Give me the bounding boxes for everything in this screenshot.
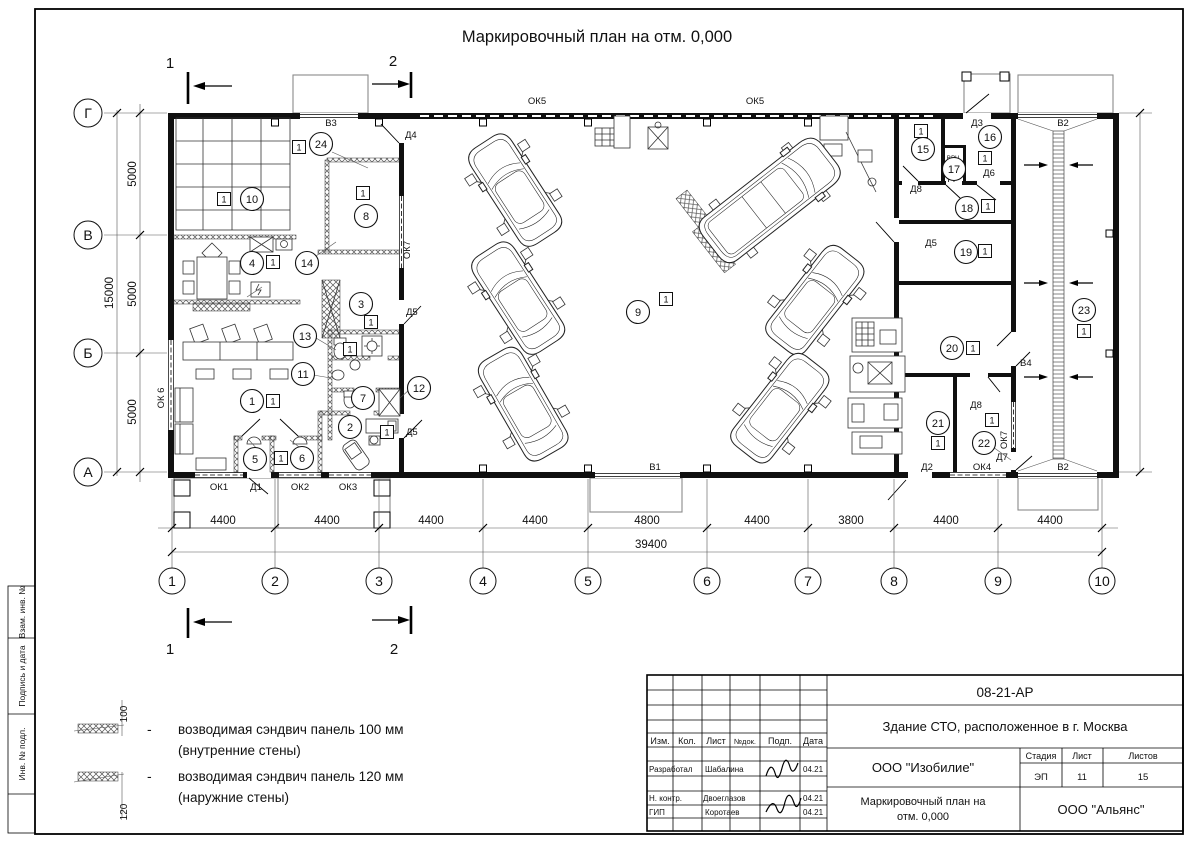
svg-text:-: -: [147, 721, 152, 737]
label-v2-bottom: В2: [1057, 462, 1069, 473]
project-name: Здание СТО, расположенное в г. Москва: [883, 719, 1129, 734]
row-role-1: Разработал: [649, 765, 693, 774]
svg-text:4: 4: [479, 573, 487, 589]
sheet-value: 11: [1077, 772, 1087, 783]
label-ok4: ОК4: [973, 462, 991, 473]
svg-text:возводимая сэндвич панель 120: возводимая сэндвич панель 120 мм: [178, 769, 404, 784]
svg-text:12: 12: [413, 383, 425, 395]
sheets-label: Листов: [1128, 751, 1157, 761]
svg-text:Б: Б: [83, 345, 92, 361]
svg-text:1: 1: [982, 247, 987, 257]
svg-text:4400: 4400: [744, 515, 770, 527]
svg-text:1: 1: [347, 345, 352, 355]
svg-text:Г: Г: [84, 105, 92, 121]
svg-text:17: 17: [948, 164, 960, 176]
svg-text:3: 3: [358, 299, 364, 311]
label-ok2: ОК2: [291, 482, 309, 493]
svg-text:13: 13: [299, 331, 311, 343]
sheets-value: 15: [1138, 772, 1149, 783]
svg-text:19: 19: [960, 247, 972, 259]
svg-text:2: 2: [389, 53, 397, 70]
label-ok7-left: ОК7: [402, 241, 413, 259]
label-v3: В3: [325, 118, 337, 129]
svg-text:9: 9: [994, 573, 1002, 589]
svg-text:1: 1: [278, 454, 283, 464]
org-name: ООО "Изобилие": [872, 760, 975, 775]
svg-text:1: 1: [918, 127, 923, 137]
svg-text:5000: 5000: [127, 399, 139, 425]
svg-text:16: 16: [984, 132, 996, 144]
svg-text:1: 1: [982, 154, 987, 164]
label-ok5-2: ОК5: [746, 96, 764, 107]
svg-text:В: В: [83, 227, 92, 243]
label-d3: Д3: [971, 118, 983, 129]
doc-title-line2: отм. 0,000: [897, 811, 949, 823]
svg-text:1: 1: [166, 641, 174, 658]
svg-text:(наружние стены): (наружние стены): [178, 790, 289, 805]
label-ok5-1: ОК5: [528, 96, 546, 107]
dim-labels-bottom: 4400 4400 4400 4400 4800 4400 3800 4400 …: [210, 515, 1063, 551]
svg-text:Подп.: Подп.: [768, 736, 792, 746]
svg-text:Дата: Дата: [803, 736, 823, 746]
stage-label: Стадия: [1026, 751, 1057, 761]
svg-text:Кол.: Кол.: [678, 736, 696, 746]
svg-text:4400: 4400: [1037, 515, 1063, 527]
svg-text:5000: 5000: [127, 281, 139, 307]
signature-2: [766, 795, 801, 812]
svg-text:11: 11: [297, 369, 308, 381]
svg-text:24: 24: [315, 139, 327, 151]
doc-code: 08-21-АР: [976, 685, 1033, 700]
label-d1: Д1: [250, 482, 262, 493]
svg-text:14: 14: [301, 258, 313, 270]
svg-text:5: 5: [584, 573, 592, 589]
drawing-sheet: Взам. инв. № Подпись и дата Инв. № подл.…: [0, 0, 1191, 842]
row-role-2: Н. контр.: [649, 794, 682, 803]
svg-text:1: 1: [270, 397, 275, 407]
svg-text:2: 2: [390, 641, 398, 658]
svg-text:7: 7: [360, 393, 366, 405]
label-ok3: ОК3: [339, 482, 357, 493]
svg-text:1: 1: [270, 258, 275, 268]
svg-text:5: 5: [252, 454, 258, 466]
svg-text:18: 18: [961, 203, 973, 215]
svg-text:1: 1: [166, 55, 174, 72]
svg-text:1: 1: [368, 318, 373, 328]
svg-text:2: 2: [271, 573, 279, 589]
svg-text:2: 2: [347, 422, 353, 434]
label-d4: Д4: [405, 130, 417, 141]
title-block: 08-21-АР Здание СТО, расположенное в г. …: [647, 675, 1183, 831]
row-date-3: 04.21: [803, 808, 824, 817]
svg-text:21: 21: [932, 418, 944, 430]
svg-text:возводимая сэндвич панель 100: возводимая сэндвич панель 100 мм: [178, 722, 404, 737]
stamp-label-inv: Инв. № подл.: [17, 728, 27, 781]
label-ok7-right: ОК7: [999, 431, 1010, 449]
svg-text:1: 1: [360, 189, 365, 199]
axis-bubbles-left: Г В Б А: [74, 99, 102, 486]
svg-text:4: 4: [249, 258, 255, 270]
legend-item-1: 100 - возводимая сэндвич панель 100 мм (…: [74, 700, 404, 758]
svg-text:20: 20: [946, 343, 958, 355]
label-ok1: ОК1: [210, 482, 228, 493]
row-name-3: Коротаев: [705, 808, 740, 817]
stamp-label-podpis: Подпись и дата: [17, 645, 27, 706]
svg-text:-: -: [147, 768, 152, 784]
label-d5-right: Д5: [925, 238, 937, 249]
svg-text:8: 8: [890, 573, 898, 589]
svg-text:23: 23: [1078, 305, 1090, 317]
svg-text:4400: 4400: [314, 515, 340, 527]
label-d5-left2: Д5: [406, 427, 418, 438]
label-d8-2: Д8: [970, 400, 982, 411]
floor-plan-sheet: Взам. инв. № Подпись и дата Инв. № подл.…: [0, 0, 1191, 842]
label-d8-1: Д8: [910, 184, 922, 195]
stage-value: ЭП: [1034, 772, 1048, 783]
svg-text:5000: 5000: [127, 161, 139, 187]
svg-text:3: 3: [375, 573, 383, 589]
dim-labels-left: 5000 5000 5000 15000: [104, 161, 139, 425]
svg-text:№док.: №док.: [734, 737, 756, 746]
label-v2-top: В2: [1057, 118, 1069, 129]
legend-dim-120: 120: [119, 803, 130, 820]
svg-text:9: 9: [635, 307, 641, 319]
svg-text:1: 1: [989, 416, 994, 426]
svg-text:(внутренние стены): (внутренние стены): [178, 743, 301, 758]
svg-text:8: 8: [363, 211, 369, 223]
svg-text:4400: 4400: [522, 515, 548, 527]
label-d5-left1: Д5: [406, 307, 418, 318]
svg-text:1: 1: [1081, 327, 1086, 337]
svg-text:1: 1: [935, 439, 940, 449]
svg-text:1: 1: [249, 396, 255, 408]
label-v4: В4: [1020, 358, 1032, 369]
plan-title: Маркировочный план на отм. 0,000: [462, 28, 732, 46]
hall-benches-right: [848, 318, 905, 454]
svg-text:1: 1: [168, 573, 176, 589]
svg-text:15: 15: [917, 144, 929, 156]
svg-text:22: 22: [978, 438, 990, 450]
stamp-label-vzam: Взам. инв. №: [17, 586, 27, 639]
axis-bubbles-bottom: 1 2 3 4 5 6 7 8 9 10: [159, 568, 1115, 594]
svg-text:Лист: Лист: [706, 736, 726, 746]
svg-text:1: 1: [221, 195, 226, 205]
legend: 100 - возводимая сэндвич панель 100 мм (…: [74, 700, 404, 820]
svg-text:Изм.: Изм.: [650, 736, 669, 746]
row-date-2: 04.21: [803, 794, 824, 803]
svg-text:3800: 3800: [838, 515, 864, 527]
svg-text:6: 6: [299, 453, 305, 465]
label-d2: Д2: [921, 462, 933, 473]
drive-lane: [1018, 119, 1097, 471]
svg-text:4800: 4800: [634, 515, 660, 527]
dim-total-bottom: 39400: [635, 539, 667, 551]
row-name-2: Двоеглазов: [703, 794, 746, 803]
svg-text:7: 7: [804, 573, 812, 589]
row-date-1: 04.21: [803, 765, 824, 774]
svg-text:1: 1: [296, 143, 301, 153]
svg-text:1: 1: [384, 428, 389, 438]
label-ok6: ОК 6: [156, 388, 167, 409]
svg-text:10: 10: [1094, 573, 1110, 589]
label-d7: Д7: [996, 452, 1008, 463]
dim-total-left: 15000: [104, 277, 116, 309]
legend-item-2: 120 - возводимая сэндвич панель 120 мм (…: [74, 768, 404, 820]
firm-name: ООО "Альянс": [1058, 802, 1145, 817]
svg-text:1: 1: [985, 202, 990, 212]
label-d6: Д6: [983, 168, 995, 179]
side-stamp-column: Взам. инв. № Подпись и дата Инв. № подл.: [8, 586, 35, 833]
svg-text:1: 1: [663, 295, 668, 305]
svg-text:А: А: [83, 464, 93, 480]
svg-text:4400: 4400: [210, 515, 236, 527]
doc-title-line1: Маркировочный план на: [860, 796, 986, 808]
furniture-room-10: [176, 118, 290, 230]
svg-text:10: 10: [246, 194, 258, 206]
legend-dim-100: 100: [119, 705, 130, 722]
signature-1: [766, 760, 798, 777]
svg-text:4400: 4400: [418, 515, 444, 527]
row-name-1: Шабалина: [705, 765, 744, 774]
sheet-label: Лист: [1072, 751, 1092, 761]
row-role-3: ГИП: [649, 808, 665, 817]
svg-text:4400: 4400: [933, 515, 959, 527]
svg-text:6: 6: [703, 573, 711, 589]
svg-text:1: 1: [970, 344, 975, 354]
wardrobe: [193, 303, 250, 311]
label-v1: В1: [649, 462, 661, 473]
